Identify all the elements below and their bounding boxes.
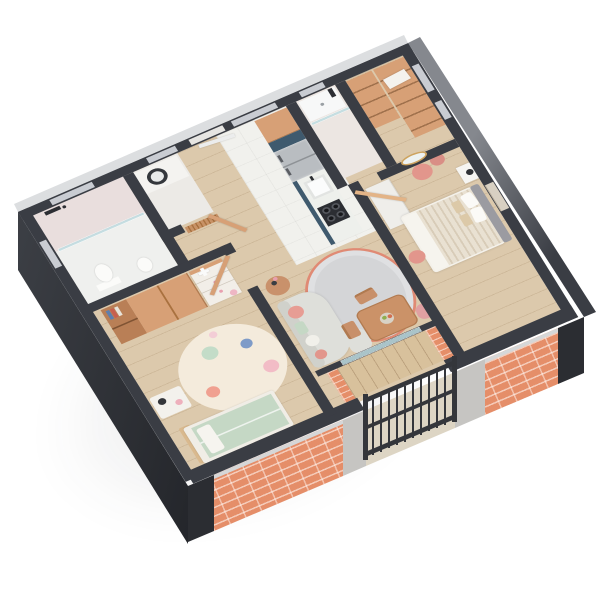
railing-baluster [420,379,422,435]
railing-baluster [380,396,382,452]
railing-baluster [404,386,406,442]
railing-baluster [372,399,374,455]
facade-dark-corner-east [558,317,584,384]
railing-baluster [412,382,414,438]
railing-baluster [388,392,390,448]
railing-baluster [436,372,438,428]
railing-baluster [444,369,446,425]
floorplan-render [0,0,600,600]
balcony-railing [356,346,460,470]
facade-dark-corner-south [188,475,214,542]
railing-baluster [396,389,398,445]
railing-baluster [428,375,430,431]
